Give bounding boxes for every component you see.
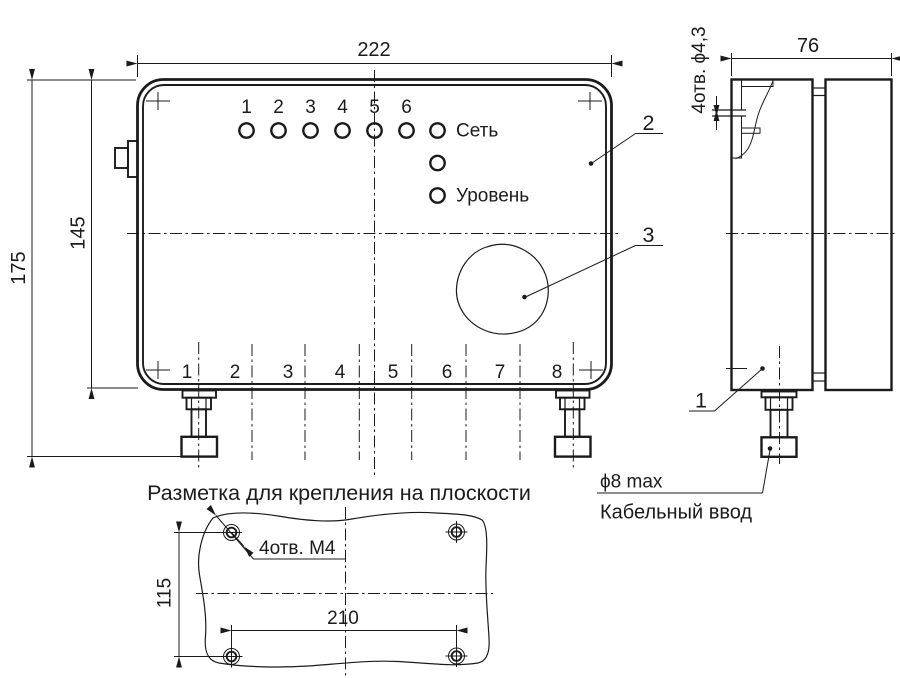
mount-tab-top: [813, 88, 826, 96]
mounting-view: Разметка для крепления на плоскости: [147, 481, 531, 677]
callout-cover: 2: [589, 111, 663, 166]
mount-lug-section: [712, 80, 773, 159]
callout-dot: [522, 295, 527, 300]
corner-screw-mark: [146, 92, 170, 110]
callout-dot: [760, 366, 765, 371]
cable-diameter-label: ϕ8 max: [600, 472, 663, 493]
dimension-value: 210: [327, 608, 359, 629]
dimension-value: 175: [8, 251, 30, 284]
terminal-number: 7: [495, 362, 506, 383]
led-circle: [303, 123, 317, 137]
dimension-value: 76: [797, 35, 819, 57]
terminal-number: 1: [182, 362, 193, 383]
terminal-number: 8: [552, 362, 563, 383]
cable-gland-side: [762, 346, 797, 464]
terminal-section-lines: [199, 342, 574, 468]
dimension-210: 210: [232, 608, 457, 650]
cable-entry-label: Кабельный ввод: [600, 502, 752, 524]
holes-spec-label: 4отв. ϕ4,3: [689, 26, 710, 113]
dimension-value: 222: [357, 39, 390, 61]
terminal-number: 3: [283, 362, 294, 383]
callout-leader: [592, 134, 636, 164]
hatch-area: [742, 128, 761, 133]
led-circle: [271, 123, 285, 137]
led-number: 6: [401, 97, 412, 118]
mount-tab-bottom: [813, 373, 826, 381]
side-view: 4отв. ϕ4,3 76 1 ϕ8 m: [597, 26, 898, 523]
note-dot: [768, 446, 773, 451]
led-circle: [239, 123, 253, 137]
led-circle: [335, 123, 349, 137]
side-connector-boss: [115, 148, 128, 168]
led-circle: [399, 123, 413, 137]
hatch-area: [732, 116, 742, 158]
dimension-value: 145: [68, 216, 90, 249]
dimension-115: 115: [155, 533, 243, 657]
led-power-circle: [430, 123, 444, 137]
led-row: 1 2 3 4 5 6 Сеть Уровень: [239, 97, 529, 207]
callout-speaker: 3: [522, 223, 663, 299]
dimension-value: 115: [155, 578, 176, 608]
callout-dot: [589, 161, 594, 166]
cable-gland-front-left: [182, 391, 218, 457]
technical-drawing: 1 2 3 4 5 6 Сеть Уровень: [0, 0, 900, 678]
holes-label-note: 4отв. М4: [216, 516, 346, 560]
body-outline: [732, 80, 813, 391]
corner-screw-mark: [146, 361, 170, 379]
dimension-height-175: 175: [8, 80, 181, 457]
drawing-sheet: 1 2 3 4 5 6 Сеть Уровень: [0, 0, 900, 678]
note-leader: [216, 516, 254, 560]
corner-screw-mark: [578, 92, 602, 110]
terminal-number: 6: [442, 362, 453, 383]
callout-number: 2: [643, 111, 655, 135]
corner-screw-mark: [579, 361, 603, 379]
dimension-hole-4-3: 4отв. ϕ4,3: [689, 26, 717, 130]
hatch-area: [742, 80, 774, 87]
led-number: 3: [305, 97, 316, 118]
speaker-outline: [456, 244, 548, 334]
mounting-title: Разметка для крепления на плоскости: [147, 481, 531, 505]
led-number: 4: [337, 97, 348, 118]
front-view: 1 2 3 4 5 6 Сеть Уровень: [8, 39, 663, 476]
cable-entry-note: ϕ8 max Кабельный ввод: [597, 446, 772, 523]
terminal-number: 4: [335, 362, 346, 383]
template-plate-outline: [199, 512, 490, 667]
back-plate-outline: [826, 80, 892, 391]
led-number: 5: [369, 97, 380, 118]
level-label: Уровень: [456, 186, 529, 207]
hatch-area: [732, 80, 742, 110]
callout-leader: [526, 246, 636, 298]
mount-hole-top-right: [446, 521, 468, 543]
cable-gland-front-right: [555, 391, 591, 457]
dimension-depth-76: 76: [732, 35, 892, 76]
enclosure-outer-edge: [138, 80, 612, 390]
led-level-circle: [430, 188, 444, 202]
terminal-number: 2: [230, 362, 241, 383]
callout-number: 3: [643, 223, 655, 247]
note-leader-arrow: [232, 533, 245, 547]
led-number: 1: [241, 97, 252, 118]
led-number: 2: [273, 97, 284, 118]
power-label: Сеть: [456, 121, 498, 142]
terminal-numbers: 1 2 3 4 5 6 7 8: [182, 362, 563, 383]
holes-label: 4отв. М4: [259, 538, 336, 559]
terminal-number: 5: [388, 362, 399, 383]
callout-number: 1: [695, 389, 707, 413]
side-connector-flange: [128, 141, 138, 177]
led-middle-circle: [430, 156, 444, 170]
